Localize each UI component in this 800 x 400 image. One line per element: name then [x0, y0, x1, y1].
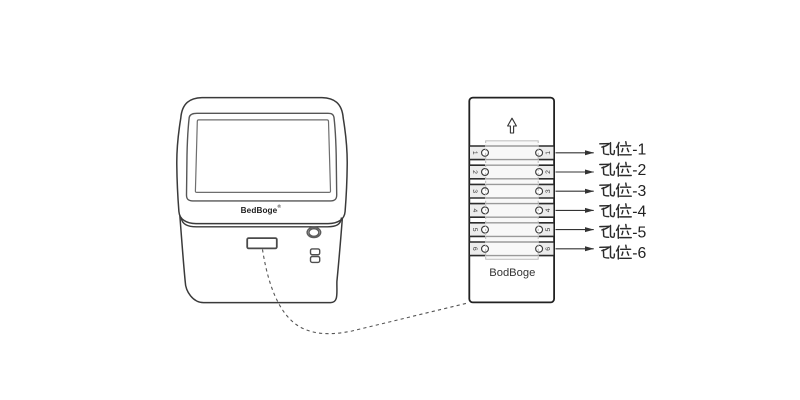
svg-text:4: 4 [545, 208, 552, 212]
svg-text:3: 3 [471, 189, 478, 193]
svg-text:1: 1 [471, 151, 478, 155]
svg-text:-1: -1 [632, 142, 646, 159]
svg-text:4: 4 [471, 209, 478, 213]
svg-text:-2: -2 [632, 162, 646, 179]
svg-text:2: 2 [471, 170, 478, 174]
svg-text:-6: -6 [632, 245, 646, 262]
svg-text:-3: -3 [632, 183, 646, 200]
svg-text:-4: -4 [632, 204, 646, 221]
svg-text:3: 3 [545, 189, 552, 193]
svg-text:2: 2 [545, 170, 552, 174]
svg-text:6: 6 [471, 247, 478, 251]
svg-text:-5: -5 [632, 224, 646, 241]
svg-text:1: 1 [545, 151, 552, 155]
svg-text:5: 5 [471, 228, 478, 232]
svg-text:6: 6 [545, 247, 552, 251]
svg-text:5: 5 [545, 227, 552, 231]
svg-text:BodBoge: BodBoge [489, 267, 535, 279]
svg-text:BedBoge: BedBoge [241, 206, 278, 215]
